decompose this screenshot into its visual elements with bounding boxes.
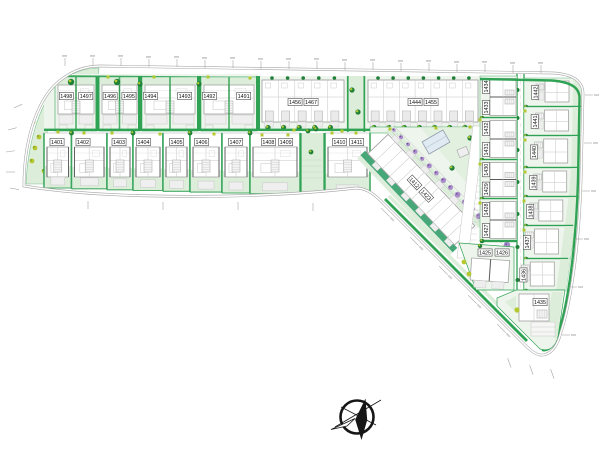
svg-text:1411: 1411	[351, 140, 363, 146]
svg-text:1401: 1401	[51, 140, 63, 146]
svg-text:1403: 1403	[113, 140, 125, 146]
svg-text:1402: 1402	[77, 140, 89, 146]
svg-text:1431: 1431	[484, 144, 490, 156]
svg-text:1410: 1410	[333, 140, 345, 146]
svg-text:1493: 1493	[179, 94, 191, 100]
svg-text:1441: 1441	[533, 116, 539, 128]
svg-text:1404: 1404	[138, 140, 150, 146]
svg-text:1498: 1498	[60, 94, 72, 100]
svg-text:1407: 1407	[230, 140, 242, 146]
svg-text:1425: 1425	[479, 251, 491, 257]
svg-text:1442: 1442	[533, 87, 539, 99]
svg-text:1408: 1408	[262, 140, 274, 146]
svg-text:1435: 1435	[534, 300, 546, 306]
svg-text:1497: 1497	[80, 94, 92, 100]
svg-text:1495: 1495	[123, 94, 135, 100]
svg-text:1491: 1491	[238, 94, 250, 100]
svg-text:1432: 1432	[484, 123, 490, 135]
svg-text:1405: 1405	[171, 140, 183, 146]
svg-text:1456: 1456	[289, 100, 301, 106]
svg-text:1409: 1409	[280, 140, 292, 146]
svg-text:1430: 1430	[484, 164, 490, 176]
svg-text:1406: 1406	[196, 140, 208, 146]
svg-text:1492: 1492	[203, 94, 215, 100]
svg-text:1437: 1437	[525, 237, 531, 249]
svg-text:1429: 1429	[484, 183, 490, 195]
svg-text:1436: 1436	[522, 269, 528, 281]
svg-text:1444: 1444	[409, 100, 421, 106]
svg-text:1426: 1426	[496, 251, 508, 257]
svg-text:1433: 1433	[484, 102, 490, 114]
svg-text:1494: 1494	[144, 94, 156, 100]
svg-text:1455: 1455	[425, 100, 437, 106]
svg-text:1467: 1467	[305, 100, 317, 106]
svg-text:1434: 1434	[484, 81, 490, 93]
svg-text:1440: 1440	[532, 146, 538, 158]
svg-text:1428: 1428	[484, 204, 490, 216]
svg-text:1439: 1439	[531, 177, 537, 189]
svg-text:1427: 1427	[484, 225, 490, 237]
svg-text:1438: 1438	[528, 206, 534, 218]
svg-text:1496: 1496	[104, 94, 116, 100]
